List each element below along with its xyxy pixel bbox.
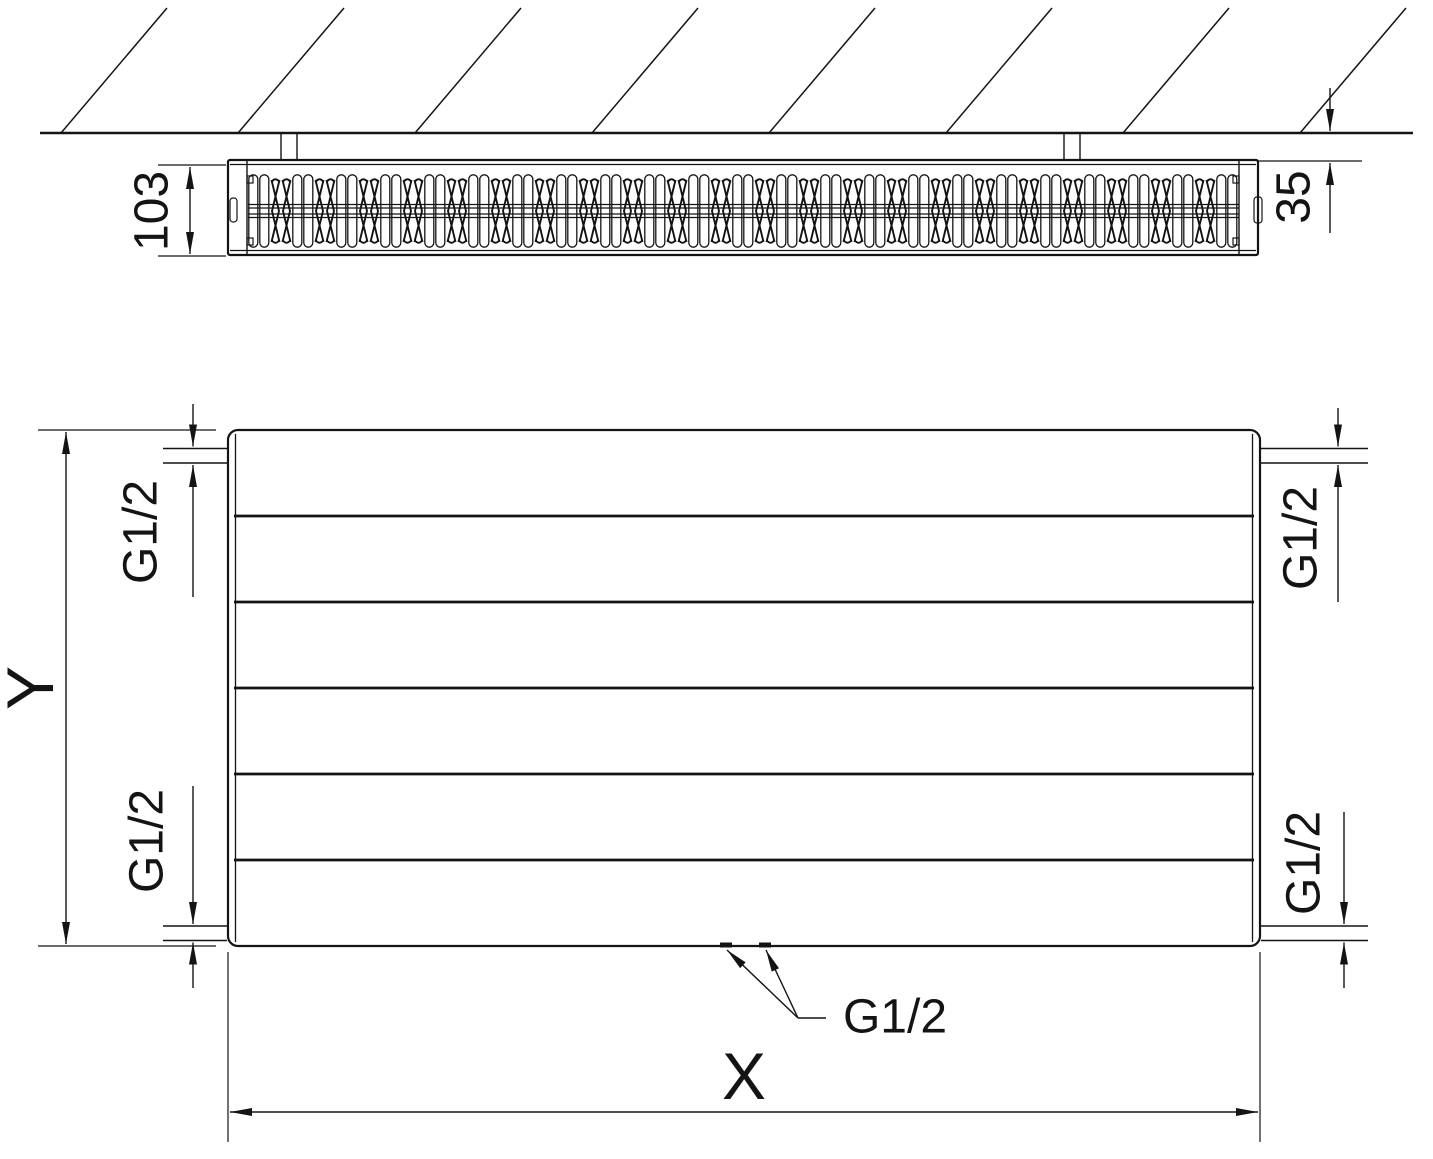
dim-thread-top-right: G1/2 <box>1275 408 1339 602</box>
dim-thread-top-left-label: G1/2 <box>115 480 168 584</box>
dim-thread-top-left: G1/2 <box>115 404 194 597</box>
bottom-connection-leader: G1/2 <box>720 945 947 1044</box>
dim-thread-top-right-label: G1/2 <box>1275 486 1328 590</box>
dim-thread-bottom-right: G1/2 <box>1278 811 1345 988</box>
dim-height-label: Y <box>0 666 67 710</box>
dim-height: Y <box>0 430 216 946</box>
radiator-technical-drawing: 103 35 <box>0 0 1433 1159</box>
connector-stub-top-right <box>1261 449 1368 464</box>
radiator-body <box>228 160 1262 255</box>
mounting-bracket-right <box>1064 134 1080 161</box>
dim-thread-bottom-left: G1/2 <box>121 786 194 988</box>
connector-stub-top-left <box>163 449 227 464</box>
dim-depth: 103 <box>126 165 227 256</box>
dim-thread-bottom-right-label: G1/2 <box>1278 811 1331 915</box>
dim-width: X <box>228 952 1260 1142</box>
dim-wall-distance: 35 <box>1258 88 1362 233</box>
dim-depth-label: 103 <box>126 171 179 251</box>
dim-thread-bottom-left-label: G1/2 <box>121 789 174 893</box>
wall-hatching <box>61 8 1406 133</box>
top-view: 103 35 <box>40 8 1413 256</box>
connector-stub-bottom-right <box>1261 926 1368 941</box>
front-view: Y G1/2 G1/2 G1/2 G1/2 <box>0 404 1368 1142</box>
mounting-bracket-left <box>281 134 297 161</box>
dim-width-label: X <box>722 1039 766 1113</box>
dim-wall-distance-label: 35 <box>1268 170 1321 223</box>
connector-stub-bottom-left <box>163 926 227 941</box>
bottom-connection-label: G1/2 <box>843 991 947 1044</box>
convector-fins <box>248 174 1239 248</box>
